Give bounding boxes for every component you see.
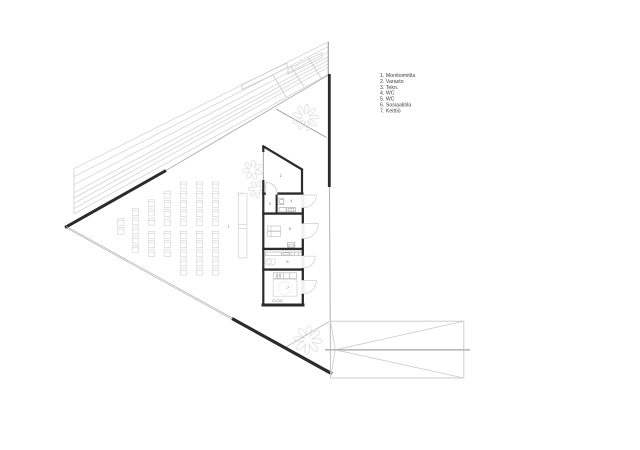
- svg-text:7. Keittiö: 7. Keittiö: [380, 108, 401, 114]
- svg-text:2: 2: [280, 174, 282, 178]
- svg-text:6: 6: [287, 260, 289, 264]
- svg-text:4: 4: [290, 199, 292, 203]
- svg-text:5: 5: [289, 227, 291, 231]
- svg-text:3: 3: [269, 202, 271, 206]
- svg-text:1: 1: [227, 224, 229, 228]
- svg-text:7: 7: [287, 286, 289, 290]
